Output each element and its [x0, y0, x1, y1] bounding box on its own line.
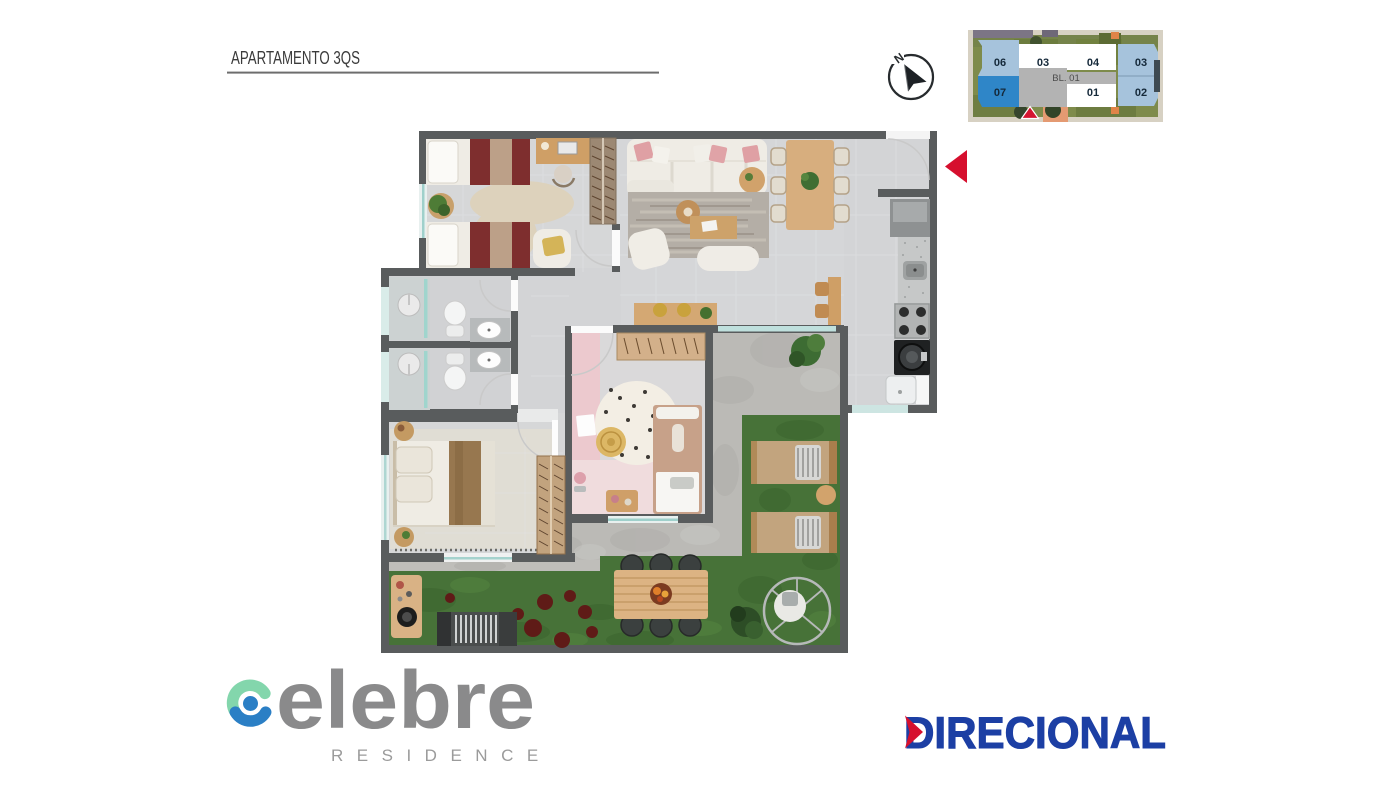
svg-text:07: 07: [994, 87, 1006, 99]
svg-text:RESIDENCE: RESIDENCE: [331, 746, 552, 765]
svg-text:01: 01: [1087, 87, 1099, 99]
svg-text:04: 04: [1087, 57, 1100, 69]
svg-text:02: 02: [1135, 87, 1147, 99]
svg-text:03: 03: [1135, 57, 1147, 69]
svg-text:APARTAMENTO 3QS: APARTAMENTO 3QS: [231, 47, 360, 68]
svg-text:elebre: elebre: [276, 655, 535, 746]
svg-text:BL. 01: BL. 01: [1052, 73, 1079, 84]
svg-text:06: 06: [994, 57, 1006, 69]
svg-text:DIRECIONAL: DIRECIONAL: [904, 709, 1166, 758]
svg-text:03: 03: [1037, 57, 1049, 69]
